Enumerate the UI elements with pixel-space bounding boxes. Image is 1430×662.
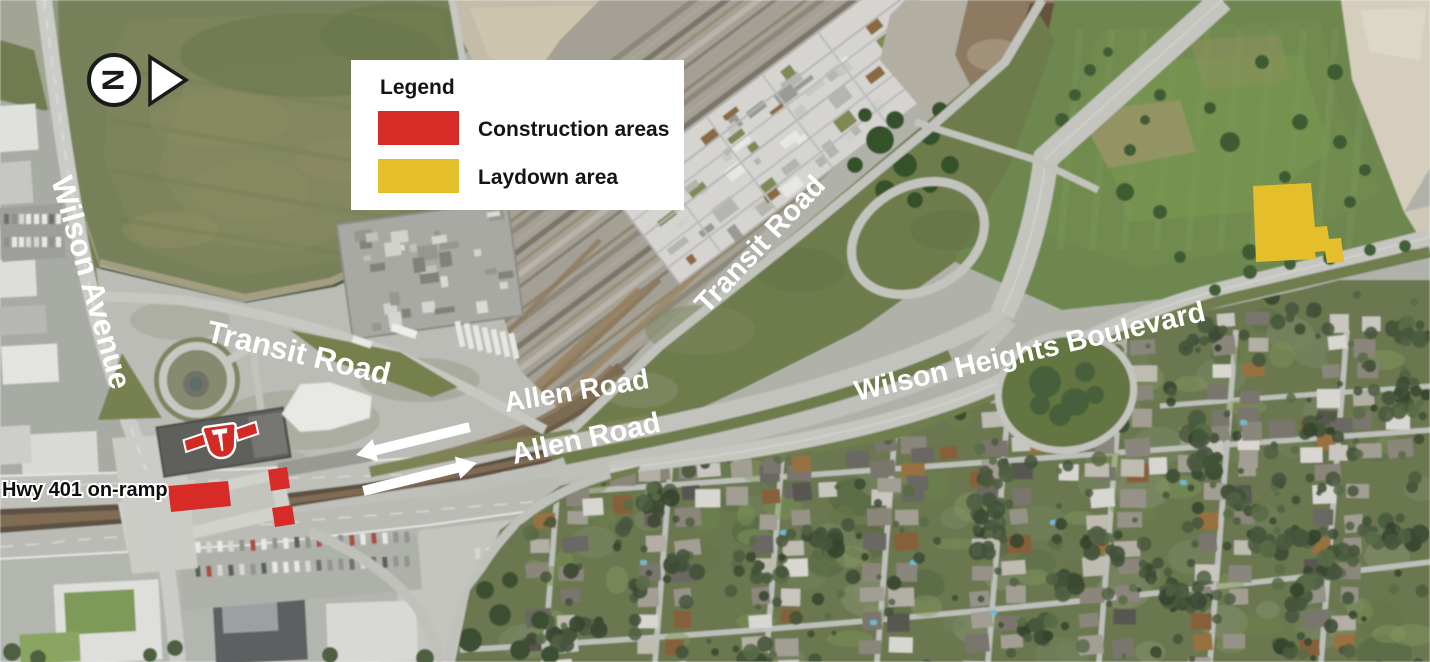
svg-text:Legend: Legend [380, 76, 455, 99]
svg-text:N: N [96, 69, 131, 91]
svg-text:Hwy 401 on-ramp: Hwy 401 on-ramp [2, 479, 168, 501]
svg-text:Construction areas: Construction areas [478, 118, 669, 141]
svg-text:Laydown area: Laydown area [478, 166, 618, 189]
